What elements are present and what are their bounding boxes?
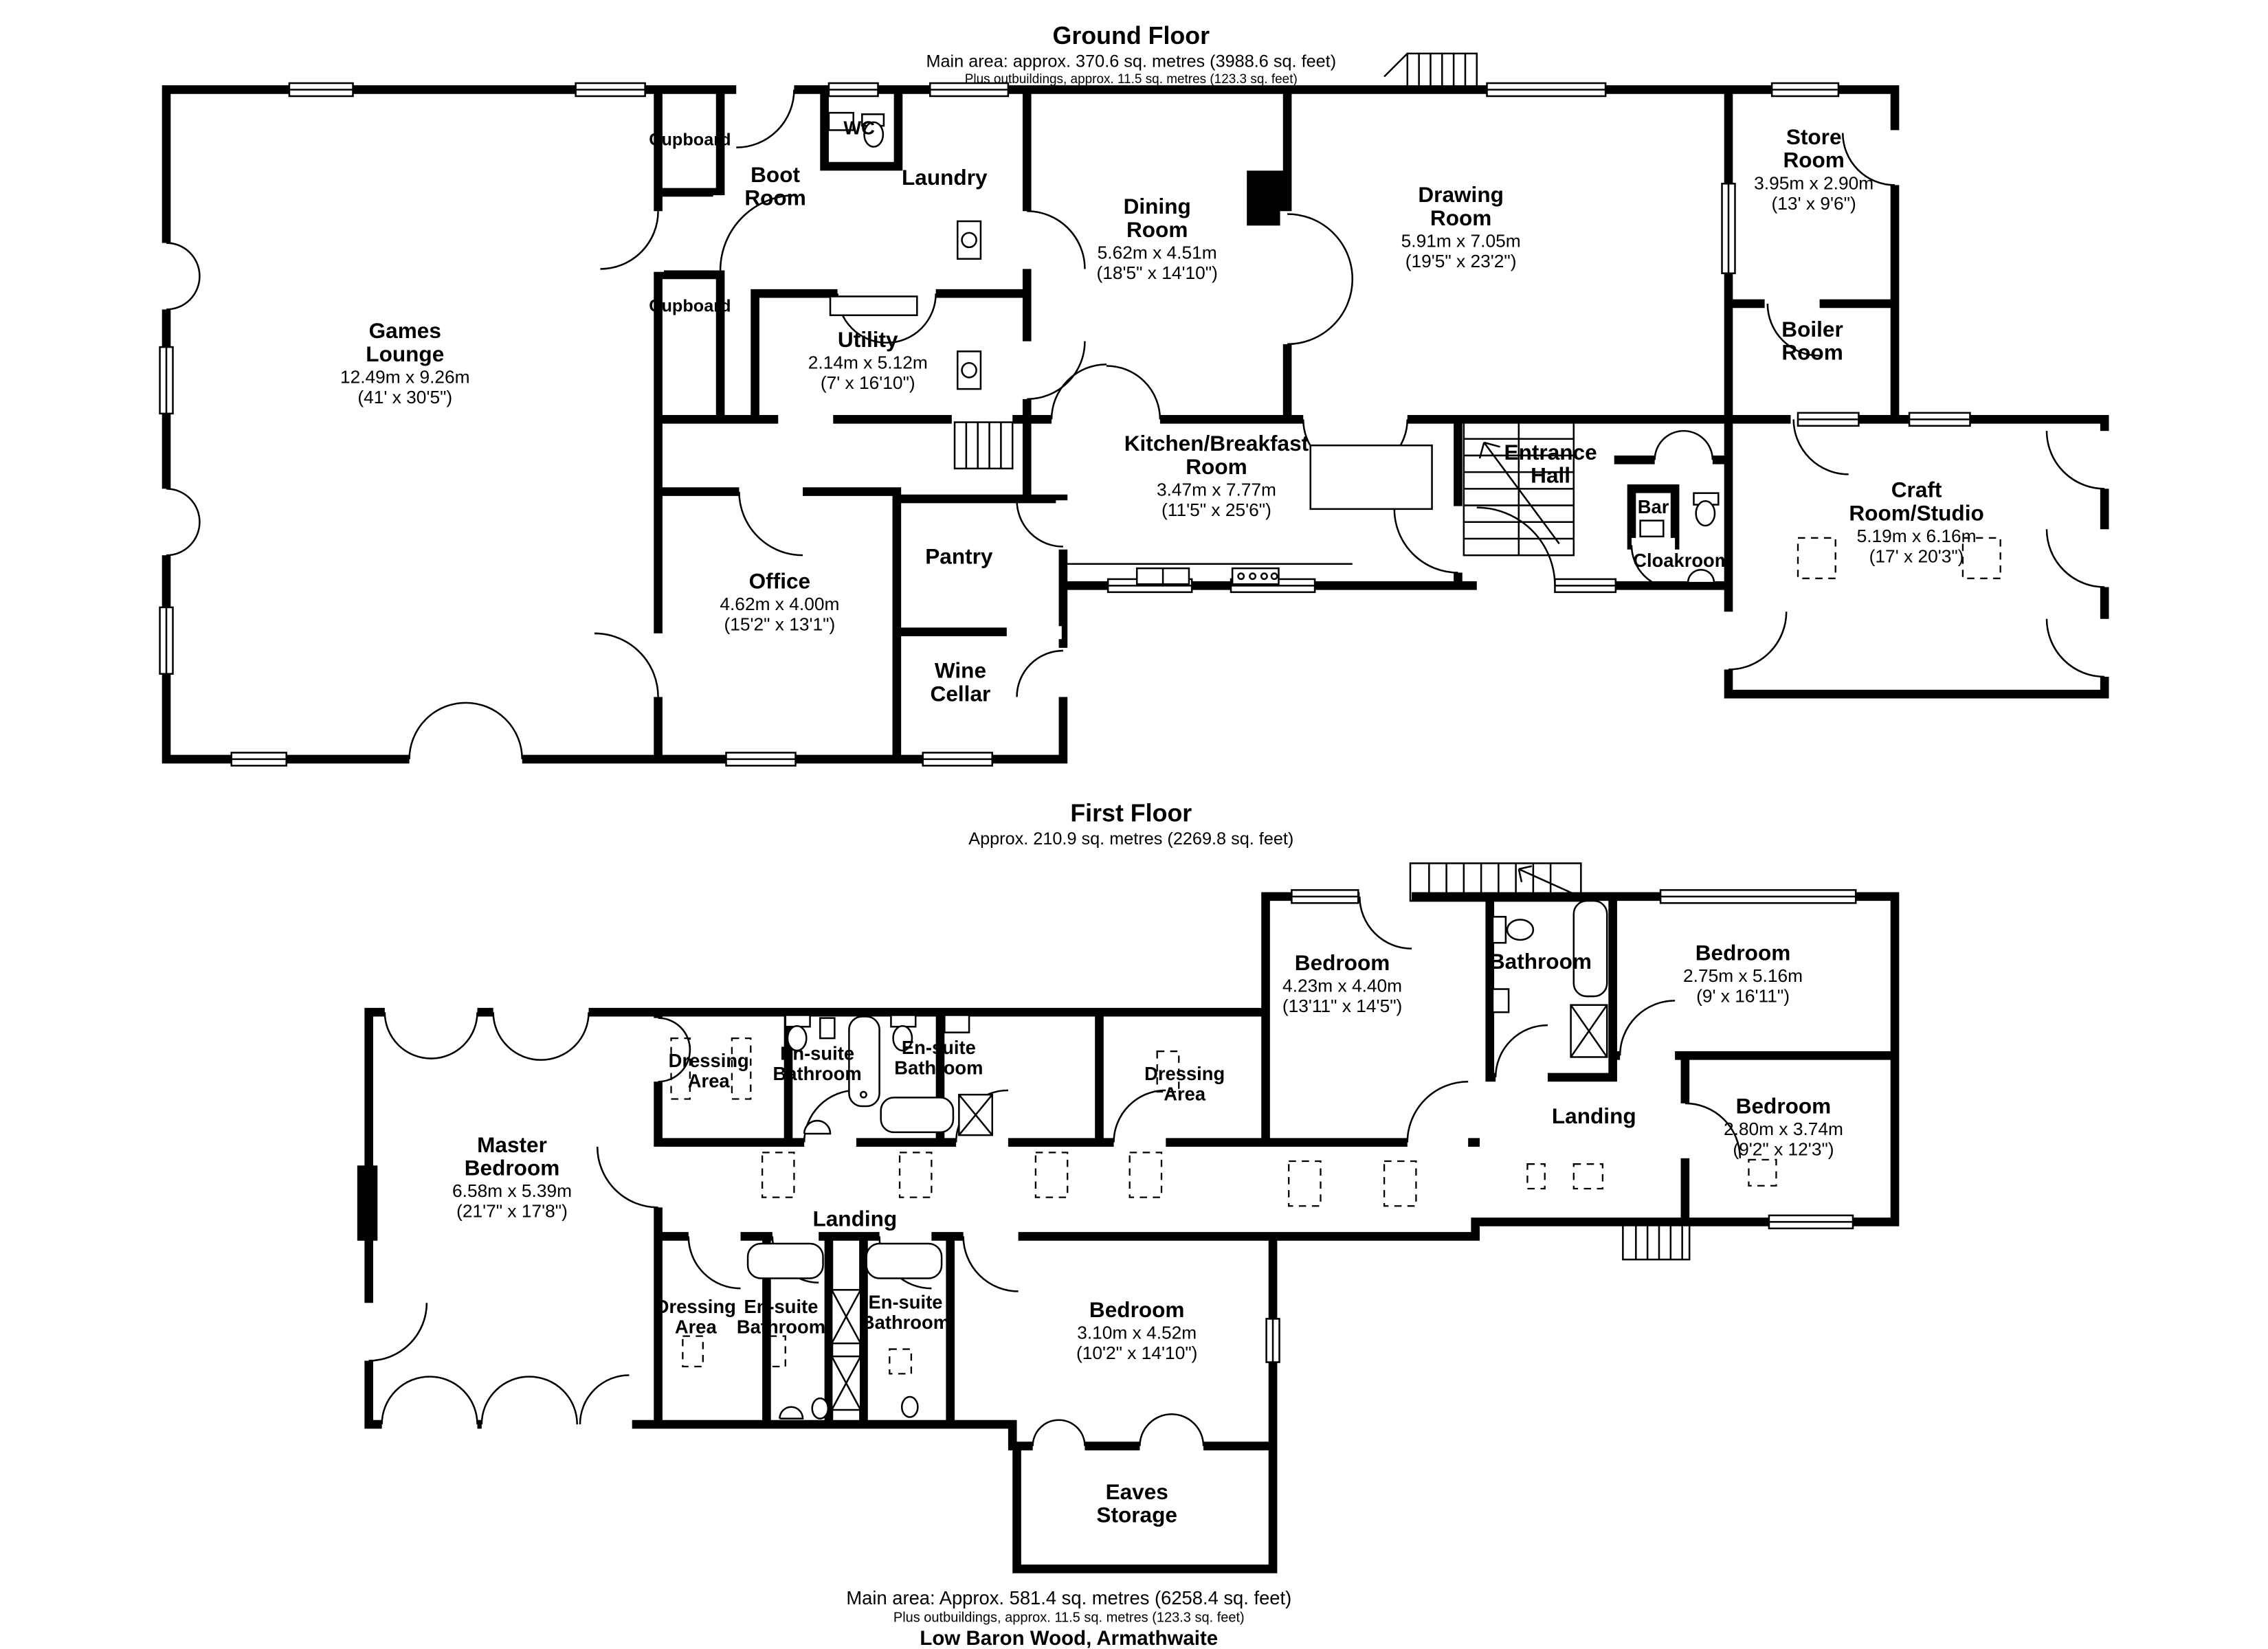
room-label-boot-room: Boot Room <box>732 165 819 212</box>
room-label-cupboard-bottom: Cupboard <box>649 298 731 316</box>
room-name: En-suite Bathroom <box>766 1044 867 1084</box>
footer: Main area: Approx. 581.4 sq. metres (625… <box>846 1587 1291 1649</box>
room-label-craft-room: Craft Room/Studio 5.19m x 6.16m (17' x 2… <box>1837 480 1997 567</box>
room-name: Bedroom <box>1076 1300 1197 1323</box>
room-name: Dining Room <box>1107 197 1208 243</box>
room-metric: 6.58m x 5.39m <box>452 1182 572 1202</box>
room-metric: 4.62m x 4.00m <box>720 594 839 614</box>
room-label-landing-right: Landing <box>1552 1106 1636 1130</box>
room-name: Dressing Area <box>1134 1064 1235 1105</box>
room-label-landing-center: Landing <box>812 1209 897 1232</box>
room-name: Boot Room <box>732 165 819 212</box>
room-metric: 2.14m x 5.12m <box>808 353 928 373</box>
room-metric: 4.23m x 4.40m <box>1282 976 1402 996</box>
room-label-kitchen-breakfast: Kitchen/Breakfast Room 3.47m x 7.77m (11… <box>1121 434 1312 521</box>
room-name: Boiler Room <box>1769 319 1856 366</box>
room-imperial: (18'5" x 14'10") <box>1096 263 1217 283</box>
first-floor-area: Approx. 210.9 sq. metres (2269.8 sq. fee… <box>968 828 1293 849</box>
footer-main-area: Main area: Approx. 581.4 sq. metres (625… <box>846 1587 1291 1610</box>
room-metric: 2.80m x 3.74m <box>1724 1119 1843 1139</box>
room-label-boiler-room: Boiler Room <box>1769 319 1856 366</box>
room-label-ensuite-3: En-suite Bathroom <box>731 1297 832 1338</box>
room-imperial: (10'2" x 14'10") <box>1076 1343 1197 1363</box>
room-label-bedroom-4: Bedroom 3.10m x 4.52m (10'2" x 14'10") <box>1076 1300 1197 1364</box>
room-name: Landing <box>1552 1106 1636 1130</box>
ground-floor-header: Ground Floor Main area: approx. 370.6 sq… <box>926 22 1336 87</box>
room-name: Cloakroom <box>1633 551 1731 572</box>
first-floor-door-arcs <box>369 897 1740 1446</box>
room-label-office: Office 4.62m x 4.00m (15'2" x 13'1") <box>720 571 839 635</box>
first-floor-plan <box>357 863 1895 1569</box>
room-name: Cupboard <box>649 131 731 150</box>
room-imperial: (15'2" x 13'1") <box>720 615 839 635</box>
room-label-bedroom-3: Bedroom 2.80m x 3.74m (9'2" x 12'3") <box>1724 1096 1843 1160</box>
room-metric: 2.75m x 5.16m <box>1683 966 1803 986</box>
room-imperial: (17' x 20'3") <box>1837 547 1997 567</box>
room-name: Eaves Storage <box>1079 1482 1194 1529</box>
first-floor-header: First Floor Approx. 210.9 sq. metres (22… <box>968 800 1293 849</box>
room-label-master-bedroom: Master Bedroom 6.58m x 5.39m (21'7" x 17… <box>452 1135 572 1222</box>
room-metric: 5.91m x 7.05m <box>1401 232 1521 251</box>
room-name: Kitchen/Breakfast Room <box>1121 434 1312 480</box>
room-name: Entrance Hall <box>1493 442 1608 489</box>
room-name: Wine Cellar <box>917 660 1003 707</box>
ground-floor-outbuildings: Plus outbuildings, approx. 11.5 sq. metr… <box>926 71 1336 88</box>
room-label-ensuite-4: En-suite Bathroom <box>855 1292 956 1333</box>
room-imperial: (11'5" x 25'6") <box>1121 501 1312 521</box>
room-imperial: (9' x 16'11") <box>1683 987 1803 1007</box>
room-label-games-lounge: Games Lounge 12.49m x 9.26m (41' x 30'5"… <box>340 321 470 408</box>
room-imperial: (13' x 9'6") <box>1754 194 1874 214</box>
room-imperial: (19'5" x 23'2") <box>1401 252 1521 272</box>
room-label-cloakroom: Cloakroom <box>1633 551 1731 572</box>
room-label-cupboard-top: Cupboard <box>649 131 731 150</box>
room-imperial: (41' x 30'5") <box>340 388 470 407</box>
room-label-drawing-room: Drawing Room 5.91m x 7.05m (19'5" x 23'2… <box>1401 185 1521 272</box>
first-floor-title: First Floor <box>968 800 1293 828</box>
room-name: Bedroom <box>1724 1096 1843 1119</box>
room-label-laundry: Laundry <box>902 168 988 191</box>
room-name: Master Bedroom <box>454 1135 570 1182</box>
room-imperial: (7' x 16'10") <box>808 373 928 393</box>
room-name: Bar <box>1638 497 1669 518</box>
room-label-bedroom-1: Bedroom 4.23m x 4.40m (13'11" x 14'5") <box>1282 953 1402 1017</box>
room-name: Landing <box>812 1209 897 1232</box>
room-name: Drawing Room <box>1403 185 1518 232</box>
room-name: En-suite Bathroom <box>888 1038 989 1079</box>
room-label-bathroom: Bathroom <box>1489 952 1592 975</box>
room-name: Office <box>720 571 839 594</box>
room-label-wine-cellar: Wine Cellar <box>917 660 1003 707</box>
room-label-eaves-storage: Eaves Storage <box>1079 1482 1194 1529</box>
room-name: Dressing Area <box>658 1051 759 1092</box>
room-label-dressing-area-1: Dressing Area <box>658 1051 759 1092</box>
first-floor-walls <box>369 897 1895 1569</box>
room-label-store-room: Store Room 3.95m x 2.90m (13' x 9'6") <box>1754 127 1874 214</box>
room-metric: 12.49m x 9.26m <box>340 368 470 388</box>
room-label-utility: Utility 2.14m x 5.12m (7' x 16'10") <box>808 330 928 394</box>
room-imperial: (21'7" x 17'8") <box>452 1202 572 1222</box>
room-name: Craft Room/Studio <box>1837 480 1997 526</box>
room-metric: 5.62m x 4.51m <box>1096 243 1217 263</box>
room-metric: 3.10m x 4.52m <box>1076 1323 1197 1343</box>
room-name: Cupboard <box>649 298 731 316</box>
master-fireplace <box>357 1165 377 1240</box>
room-label-ensuite-1: En-suite Bathroom <box>766 1044 867 1084</box>
room-imperial: (9'2" x 12'3") <box>1724 1140 1843 1160</box>
room-metric: 3.47m x 7.77m <box>1121 480 1312 500</box>
room-name: Bedroom <box>1282 953 1402 976</box>
room-name: Bathroom <box>1489 952 1592 975</box>
room-name: En-suite Bathroom <box>731 1297 832 1338</box>
room-metric: 5.19m x 6.16m <box>1837 526 1997 546</box>
room-label-entrance-hall: Entrance Hall <box>1493 442 1608 489</box>
room-label-pantry: Pantry <box>925 546 992 570</box>
footer-address: Low Baron Wood, Armathwaite <box>846 1627 1291 1649</box>
floorplan-page: Ground Floor Main area: approx. 370.6 sq… <box>0 0 2268 1648</box>
room-name: Games Lounge <box>340 321 470 368</box>
room-name: WC <box>843 119 875 139</box>
footer-outbuildings: Plus outbuildings, approx. 11.5 sq. metr… <box>846 1610 1291 1627</box>
room-metric: 3.95m x 2.90m <box>1754 174 1874 194</box>
room-name: Bedroom <box>1683 943 1803 966</box>
room-name: Utility <box>808 330 928 353</box>
room-label-wc: WC <box>843 119 875 139</box>
room-imperial: (13'11" x 14'5") <box>1282 996 1402 1016</box>
room-label-bedroom-2: Bedroom 2.75m x 5.16m (9' x 16'11") <box>1683 943 1803 1007</box>
room-label-dressing-area-2: Dressing Area <box>1134 1064 1235 1105</box>
room-label-ensuite-2: En-suite Bathroom <box>888 1038 989 1079</box>
ground-floor-area: Main area: approx. 370.6 sq. metres (398… <box>926 51 1336 71</box>
ground-floor-title: Ground Floor <box>926 22 1336 50</box>
room-name: Store Room <box>1770 127 1857 174</box>
room-name: Pantry <box>925 546 992 570</box>
room-label-bar: Bar <box>1638 497 1669 518</box>
room-name: En-suite Bathroom <box>855 1292 956 1333</box>
room-label-dining-room: Dining Room 5.62m x 4.51m (18'5" x 14'10… <box>1096 197 1217 284</box>
room-name: Laundry <box>902 168 988 191</box>
